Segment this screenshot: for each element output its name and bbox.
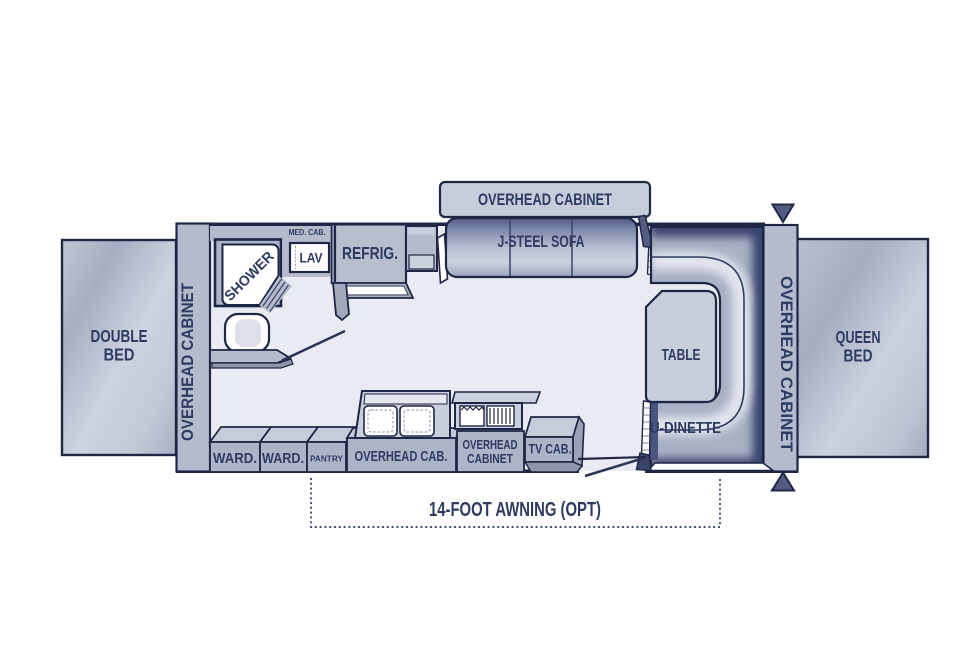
svg-text:PANTRY: PANTRY	[310, 454, 343, 464]
svg-text:J-STEEL SOFA: J-STEEL SOFA	[498, 232, 585, 251]
svg-text:OVERHEAD CABINET: OVERHEAD CABINET	[478, 190, 612, 209]
svg-text:CABINET: CABINET	[467, 451, 513, 466]
svg-text:OVERHEAD: OVERHEAD	[463, 437, 518, 452]
svg-text:OVERHEAD CABINET: OVERHEAD CABINET	[777, 276, 795, 452]
svg-text:REFRIG.: REFRIG.	[342, 243, 398, 263]
svg-text:DOUBLE: DOUBLE	[91, 326, 148, 346]
svg-text:LAV: LAV	[300, 251, 323, 266]
svg-text:OVERHEAD CAB.: OVERHEAD CAB.	[355, 449, 448, 465]
svg-text:TV CAB.: TV CAB.	[529, 441, 572, 457]
svg-text:WARD.: WARD.	[213, 451, 257, 467]
svg-text:TABLE: TABLE	[662, 347, 701, 364]
svg-text:14-FOOT AWNING (OPT): 14-FOOT AWNING (OPT)	[429, 499, 601, 521]
svg-text:BED: BED	[104, 345, 135, 365]
svg-text:WARD.: WARD.	[262, 451, 304, 467]
svg-text:BED: BED	[844, 346, 873, 366]
svg-text:QUEEN: QUEEN	[836, 327, 881, 347]
svg-text:OVERHEAD CABINET: OVERHEAD CABINET	[179, 283, 197, 441]
svg-text:U-DINETTE: U-DINETTE	[650, 420, 721, 437]
svg-text:MED. CAB.: MED. CAB.	[289, 228, 326, 237]
